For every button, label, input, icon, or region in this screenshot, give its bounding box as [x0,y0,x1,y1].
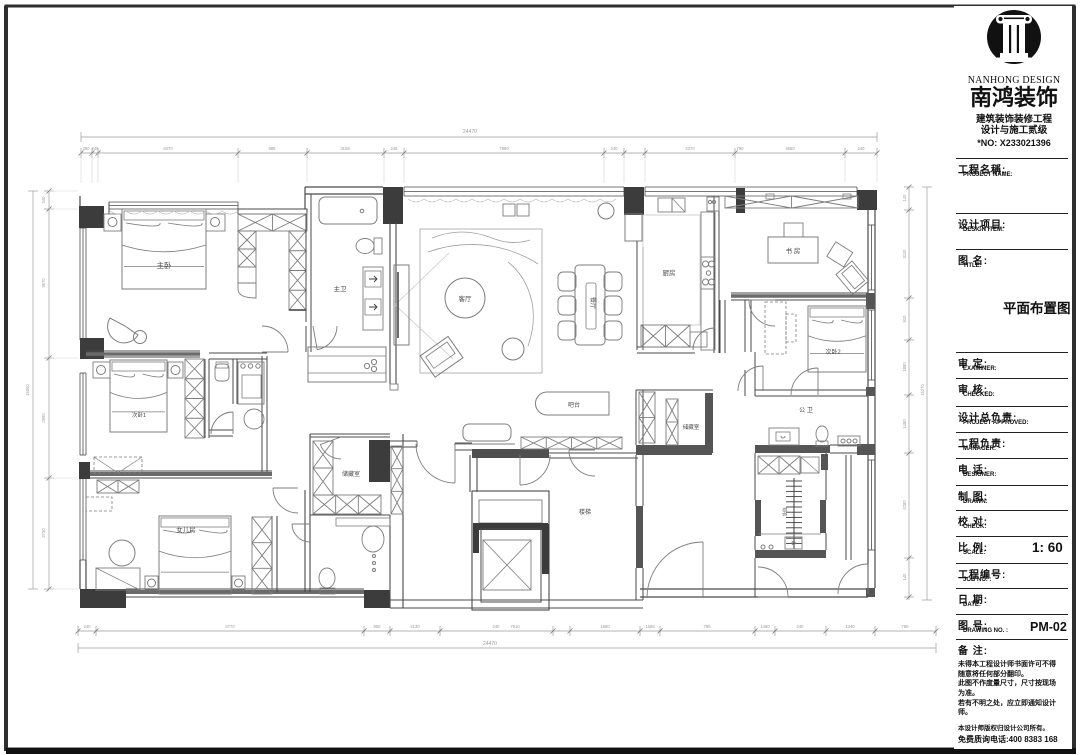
svg-text:2950: 2950 [41,413,46,423]
svg-text:950: 950 [374,624,382,629]
svg-text:主卫: 主卫 [334,284,348,293]
svg-text:4280: 4280 [902,500,907,510]
svg-text:780: 780 [704,624,712,629]
svg-text:厨房: 厨房 [663,268,676,277]
svg-text:790: 790 [737,146,745,151]
svg-text:1480: 1480 [902,419,907,429]
svg-text:书 房: 书 房 [786,246,801,255]
svg-text:1480: 1480 [760,624,770,629]
svg-text:3108: 3108 [340,146,350,151]
svg-text:女儿房: 女儿房 [176,525,196,534]
svg-text:南鸿装饰: 南鸿装饰 [970,85,1058,110]
svg-text:240: 240 [611,146,619,151]
svg-text:240: 240 [84,624,92,629]
svg-text:楼梯: 楼梯 [579,508,591,516]
svg-text:1880: 1880 [600,624,610,629]
svg-text:次卧2: 次卧2 [825,348,841,356]
svg-text:240: 240 [797,624,805,629]
svg-text:晾衣: 晾衣 [781,508,788,517]
svg-text:1340: 1340 [845,624,855,629]
svg-text:餐厅: 餐厅 [589,297,597,309]
svg-text:15060: 15060 [25,384,30,396]
svg-text:1585: 1585 [645,624,655,629]
svg-text:985: 985 [269,146,277,151]
svg-text:24470: 24470 [483,641,497,647]
svg-text:公 卫: 公 卫 [799,407,813,414]
svg-text:3110: 3110 [902,249,907,259]
svg-text:240: 240 [493,624,501,629]
svg-text:2130: 2130 [410,624,420,629]
svg-text:建筑装饰装修工程: 建筑装饰装修工程 [975,113,1053,125]
svg-text:8470: 8470 [163,146,173,151]
svg-text:140: 140 [902,194,907,202]
svg-text:储藏室: 储藏室 [342,470,360,478]
svg-text:2730: 2730 [41,528,46,538]
svg-text:2370: 2370 [685,146,695,151]
svg-text:吧台: 吧台 [568,401,580,409]
svg-text:储藏室: 储藏室 [683,423,700,431]
svg-text:3670: 3670 [41,278,46,288]
svg-text:245: 245 [92,146,100,151]
svg-text:140: 140 [902,573,907,581]
svg-text:7610: 7610 [510,624,520,629]
svg-text:5770: 5770 [225,624,235,629]
svg-text:客厅: 客厅 [459,294,473,303]
svg-text:245: 245 [391,146,399,151]
svg-text:240: 240 [41,196,46,204]
svg-text:24470: 24470 [463,129,477,135]
svg-text:380: 380 [83,146,91,151]
svg-text:7960: 7960 [499,146,509,151]
svg-text:780: 780 [902,624,910,629]
svg-text:主卧: 主卧 [157,260,172,270]
svg-text:次卧1: 次卧1 [132,411,146,419]
svg-text:910: 910 [902,315,907,323]
svg-text:4650: 4650 [785,146,795,151]
svg-text:*NO: X233021396: *NO: X233021396 [977,138,1051,148]
svg-text:1880: 1880 [902,362,907,372]
svg-text:15270: 15270 [920,384,925,396]
svg-text:设计与施工贰级: 设计与施工贰级 [981,124,1048,136]
svg-text:240: 240 [858,146,866,151]
